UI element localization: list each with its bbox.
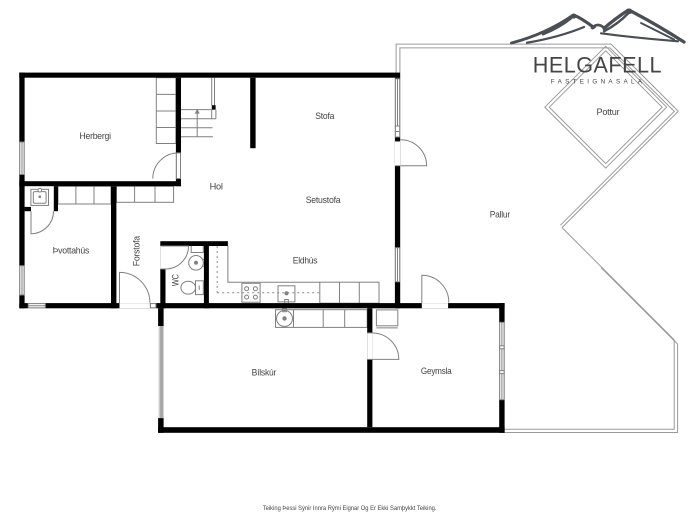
- svg-text:Setustofa: Setustofa: [306, 195, 342, 205]
- svg-text:HELGAFELL: HELGAFELL: [533, 52, 662, 77]
- svg-text:Bílskúr: Bílskúr: [252, 368, 277, 378]
- svg-text:WC: WC: [170, 274, 180, 286]
- svg-text:Hol: Hol: [210, 181, 223, 191]
- svg-text:Stofa: Stofa: [315, 111, 335, 121]
- svg-text:Teiking Þessi Sýnir Innra Rými: Teiking Þessi Sýnir Innra Rými Eignar Og…: [263, 505, 437, 512]
- svg-text:Þvottahús: Þvottahús: [53, 246, 90, 256]
- svg-text:FASTEIGNASALA: FASTEIGNASALA: [551, 79, 646, 86]
- svg-text:Eldhús: Eldhús: [293, 255, 318, 265]
- svg-text:Geymsla: Geymsla: [421, 366, 453, 376]
- svg-text:Pallur: Pallur: [490, 210, 510, 220]
- svg-text:Forstofa: Forstofa: [131, 235, 141, 266]
- svg-text:Herbergi: Herbergi: [80, 131, 111, 141]
- svg-text:Pottur: Pottur: [597, 107, 620, 117]
